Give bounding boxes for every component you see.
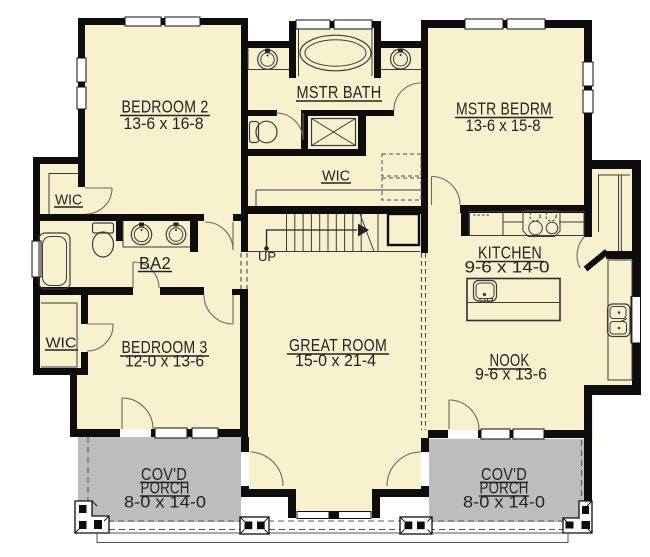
svg-text:WIC: WIC [322, 168, 350, 185]
svg-text:9-6 x 14-0: 9-6 x 14-0 [465, 259, 550, 277]
svg-text:UP: UP [258, 249, 276, 264]
svg-text:WIC: WIC [55, 192, 82, 209]
svg-text:8-0 x 14-0: 8-0 x 14-0 [124, 494, 206, 512]
svg-text:13-6 x 15-8: 13-6 x 15-8 [466, 117, 541, 135]
svg-text:15-0 x 21-4: 15-0 x 21-4 [295, 352, 376, 370]
svg-text:8-0 x 14-0: 8-0 x 14-0 [463, 494, 545, 512]
svg-text:9-6 x 13-6: 9-6 x 13-6 [475, 366, 547, 384]
svg-text:BEDROOM 2: BEDROOM 2 [122, 97, 209, 117]
svg-text:13-6 x 16-8: 13-6 x 16-8 [124, 115, 204, 133]
svg-text:WIC: WIC [46, 335, 77, 352]
svg-text:MSTR BEDRM: MSTR BEDRM [456, 99, 552, 119]
svg-text:MSTR BATH: MSTR BATH [297, 82, 382, 102]
svg-text:12-0 x 13-6: 12-0 x 13-6 [125, 353, 204, 371]
svg-text:BA2: BA2 [139, 253, 171, 273]
